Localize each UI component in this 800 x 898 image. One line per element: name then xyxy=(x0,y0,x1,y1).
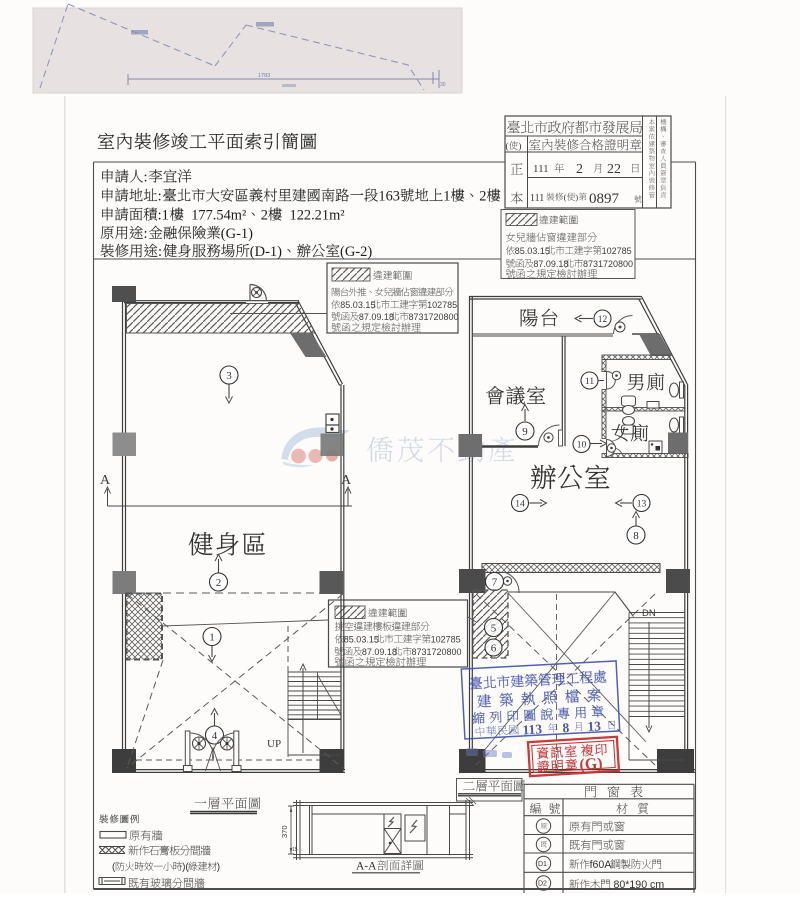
svg-text:8731720800: 8731720800 xyxy=(409,312,459,322)
svg-text:80*190 cm: 80*190 cm xyxy=(614,879,665,891)
svg-text:(: ( xyxy=(506,141,509,152)
svg-text:163: 163 xyxy=(378,189,400,205)
svg-text:0897: 0897 xyxy=(589,191,620,207)
svg-text:D1: D1 xyxy=(538,861,547,868)
svg-text:2: 2 xyxy=(576,162,583,177)
svg-text:102785: 102785 xyxy=(427,300,457,310)
svg-text:2: 2 xyxy=(479,189,486,205)
svg-text:A: A xyxy=(100,473,111,488)
svg-text:11: 11 xyxy=(585,377,594,387)
svg-text:1783: 1783 xyxy=(258,73,270,79)
svg-text:1: 1 xyxy=(209,631,215,643)
svg-text:1: 1 xyxy=(443,189,450,205)
svg-text:(G-1): (G-1) xyxy=(221,226,253,242)
svg-text:D2: D2 xyxy=(538,881,547,888)
svg-text:85.03.15: 85.03.15 xyxy=(515,246,550,256)
svg-text:8731720800: 8731720800 xyxy=(583,259,633,269)
svg-text::: : xyxy=(158,189,162,205)
svg-text:3: 3 xyxy=(226,370,232,382)
svg-text:f60A: f60A xyxy=(590,859,613,871)
svg-text:370: 370 xyxy=(280,825,289,838)
svg-text::: : xyxy=(158,244,162,260)
svg-text:12: 12 xyxy=(598,315,608,325)
svg-text:102785: 102785 xyxy=(431,635,461,645)
svg-text:30: 30 xyxy=(440,82,446,88)
svg-text:87.09.18: 87.09.18 xyxy=(533,259,568,269)
svg-text::: : xyxy=(144,170,148,186)
svg-text:9: 9 xyxy=(522,426,528,438)
svg-text:7: 7 xyxy=(492,576,498,588)
svg-text:13: 13 xyxy=(637,499,647,509)
svg-text:6: 6 xyxy=(491,642,497,654)
svg-text:177.54m²: 177.54m² xyxy=(191,208,246,224)
svg-text:14: 14 xyxy=(515,499,525,509)
svg-text:22: 22 xyxy=(607,162,621,177)
svg-text:13: 13 xyxy=(587,718,602,734)
svg-text:(: ( xyxy=(564,192,567,202)
svg-text:113: 113 xyxy=(522,721,543,737)
svg-text:UP: UP xyxy=(267,738,281,750)
svg-text:85.03.15: 85.03.15 xyxy=(344,635,379,645)
svg-text:2: 2 xyxy=(261,208,268,224)
svg-text:85.03.15: 85.03.15 xyxy=(340,300,375,310)
svg-text:5: 5 xyxy=(491,622,497,634)
svg-text:DN: DN xyxy=(642,608,656,619)
svg-text:15: 15 xyxy=(292,847,298,853)
svg-text:A-A: A-A xyxy=(356,861,377,873)
svg-text:10: 10 xyxy=(577,440,587,450)
svg-text:A: A xyxy=(341,473,352,488)
svg-text:87.09.18: 87.09.18 xyxy=(362,647,397,657)
svg-text:)(: )( xyxy=(182,862,189,873)
svg-text:2: 2 xyxy=(216,577,222,589)
svg-text:(G): (G) xyxy=(579,755,603,773)
svg-text:122.21m²: 122.21m² xyxy=(290,208,345,224)
svg-text:): ) xyxy=(217,862,220,873)
svg-text:(G-2): (G-2) xyxy=(340,244,372,260)
svg-text:111: 111 xyxy=(530,193,544,204)
svg-text:(D-1): (D-1) xyxy=(250,244,282,260)
svg-text:102785: 102785 xyxy=(602,246,632,256)
svg-text::1: :1 xyxy=(158,208,169,224)
svg-text:8: 8 xyxy=(562,720,570,735)
svg-text:): ) xyxy=(575,192,578,202)
svg-text:4: 4 xyxy=(212,730,218,742)
svg-text:): ) xyxy=(518,141,521,152)
svg-text:87.09.18: 87.09.18 xyxy=(359,312,394,322)
svg-text:111: 111 xyxy=(533,163,549,175)
svg-text::: : xyxy=(144,226,148,242)
svg-text:8731720800: 8731720800 xyxy=(412,647,462,657)
svg-text:8: 8 xyxy=(633,530,639,542)
